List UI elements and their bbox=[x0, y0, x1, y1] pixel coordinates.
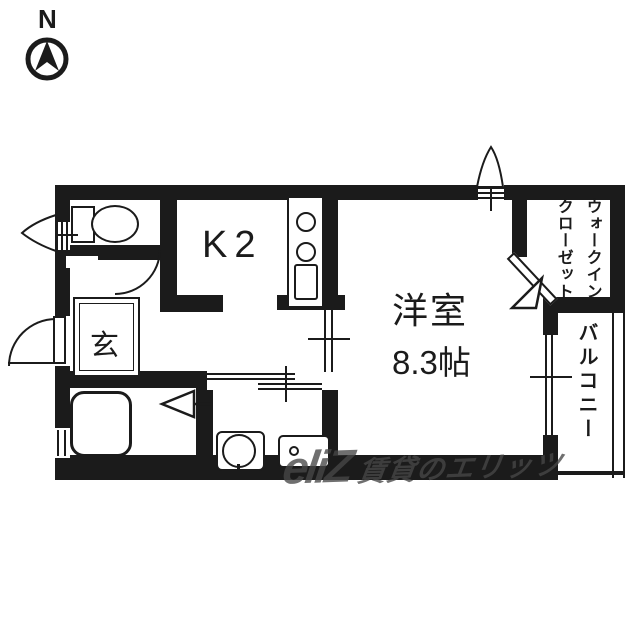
stove-burners-icon bbox=[296, 212, 316, 232]
sliding-door-line bbox=[207, 378, 295, 380]
kitchen-sink-icon bbox=[294, 264, 318, 300]
sliding-door-line bbox=[331, 310, 333, 372]
kitchen-label: K2 bbox=[202, 224, 262, 267]
wall-closet-left bbox=[512, 193, 527, 257]
watermark: eliZ 賃貸のエリッツ bbox=[279, 431, 566, 495]
sliding-door-tick bbox=[285, 366, 287, 402]
sliding-door-line bbox=[324, 310, 326, 372]
window-line bbox=[66, 222, 68, 250]
sliding-window-tick bbox=[530, 376, 572, 378]
compass-north-icon bbox=[22, 34, 72, 84]
wall-niche bbox=[66, 256, 98, 268]
balcony-label: バルコニー bbox=[572, 322, 601, 467]
balcony-edge bbox=[556, 471, 624, 475]
washbasin-tap bbox=[237, 464, 240, 474]
western-room-name: 洋室 bbox=[392, 282, 471, 334]
washbasin-bowl bbox=[222, 434, 256, 468]
watermark-text: 賃貸のエリッツ bbox=[355, 443, 565, 490]
entrance-label: 玄 bbox=[90, 322, 119, 364]
sliding-window-line bbox=[545, 335, 547, 435]
window-line bbox=[61, 222, 63, 250]
wall-kitchen-room-divider bbox=[322, 185, 338, 310]
wall-toilet-right bbox=[160, 185, 177, 312]
wall-left bbox=[55, 185, 70, 225]
toilet-door-leaf bbox=[115, 247, 161, 250]
wall-hall-stub bbox=[160, 295, 223, 312]
entrance-door-leaf bbox=[53, 316, 66, 364]
western-room-size: 8.3帖 bbox=[392, 336, 471, 384]
sliding-door-line bbox=[258, 388, 322, 390]
sliding-door-line bbox=[207, 373, 295, 375]
closet-label-line1: ウォークイン bbox=[577, 198, 606, 300]
balcony-rail bbox=[612, 313, 625, 478]
walk-in-closet-label: ウォークイン クローゼット bbox=[548, 198, 606, 300]
folding-door-icon bbox=[158, 388, 212, 420]
closet-door-swing-icon bbox=[508, 276, 548, 312]
sliding-door-line bbox=[258, 383, 322, 385]
wall-top bbox=[55, 185, 625, 200]
entrance-door-swing-icon bbox=[8, 318, 56, 366]
toilet-bowl bbox=[91, 205, 139, 243]
floor-plan: N bbox=[0, 0, 640, 640]
window-line bbox=[64, 430, 66, 456]
watermark-logo: eliZ bbox=[279, 439, 354, 495]
bathtub-icon bbox=[70, 391, 132, 457]
wall-room-balcony bbox=[543, 313, 558, 335]
toilet-door-swing-icon bbox=[115, 249, 161, 295]
stove-burners-icon bbox=[296, 242, 316, 262]
window-line bbox=[57, 430, 59, 456]
sliding-door-tick bbox=[308, 338, 350, 340]
casement-window-icon bbox=[474, 147, 508, 187]
casement-window-icon bbox=[22, 212, 56, 254]
western-room-label: 洋室 8.3帖 bbox=[392, 282, 471, 384]
entrance-door-base bbox=[8, 362, 54, 364]
sliding-window-line bbox=[551, 335, 553, 435]
wall-closet-right bbox=[610, 185, 625, 313]
closet-label-line2: クローゼット bbox=[548, 198, 577, 300]
compass-north-label: N bbox=[38, 4, 57, 35]
